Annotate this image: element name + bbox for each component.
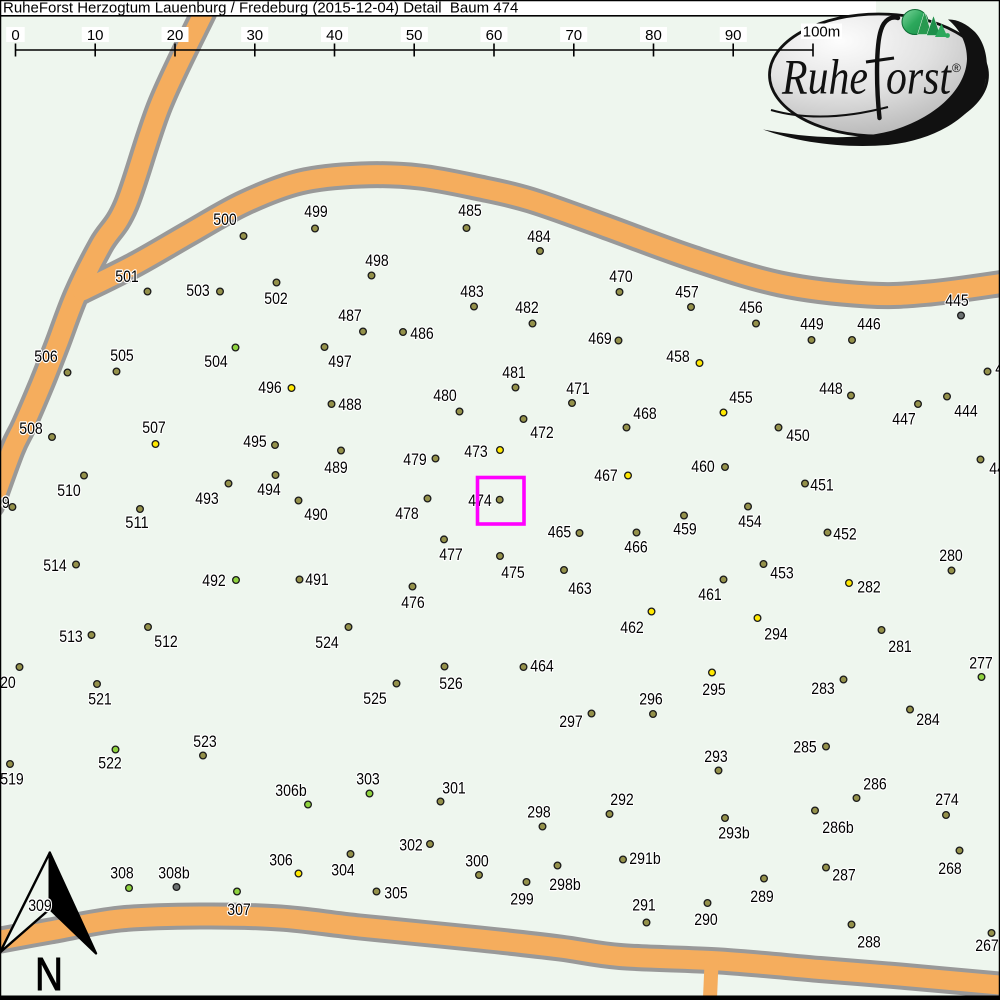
svg-text:490: 490 [304,505,328,524]
svg-text:485: 485 [458,201,482,220]
svg-text:295: 295 [702,680,726,699]
svg-text:475: 475 [501,563,525,582]
svg-text:468: 468 [633,404,657,423]
svg-text:465: 465 [548,523,572,542]
svg-text:512: 512 [154,632,178,651]
svg-text:70: 70 [565,27,582,44]
svg-text:486: 486 [410,324,434,343]
svg-text:525: 525 [363,689,387,708]
svg-text:510: 510 [57,481,81,500]
svg-text:470: 470 [609,267,633,286]
svg-text:267: 267 [975,936,999,955]
svg-text:297: 297 [559,712,583,731]
svg-text:466: 466 [624,538,648,557]
svg-text:496: 496 [258,378,282,397]
svg-text:448: 448 [819,379,843,398]
svg-text:520: 520 [0,673,16,692]
svg-text:294: 294 [764,625,788,644]
svg-text:480: 480 [433,386,457,405]
svg-text:306: 306 [269,851,293,870]
svg-text:504: 504 [204,352,228,371]
svg-text:444: 444 [954,402,978,421]
svg-text:513: 513 [59,627,83,646]
svg-text:288: 288 [857,933,881,952]
svg-text:500: 500 [213,210,237,229]
svg-text:450: 450 [786,426,810,445]
svg-text:291b: 291b [629,849,660,868]
svg-text:293b: 293b [718,824,749,843]
svg-text:304: 304 [331,861,355,880]
svg-text:303: 303 [356,770,380,789]
svg-text:479: 479 [403,450,427,469]
svg-text:293: 293 [704,747,728,766]
svg-text:298: 298 [527,803,551,822]
svg-text:282: 282 [857,578,881,597]
svg-text:302: 302 [399,836,423,855]
svg-text:460: 460 [691,457,715,476]
svg-text:296: 296 [639,690,663,709]
svg-text:503: 503 [186,281,210,300]
svg-text:30: 30 [246,27,263,44]
svg-text:497: 497 [328,352,352,371]
svg-text:493: 493 [195,489,219,508]
svg-text:442: 442 [989,459,1000,478]
svg-text:478: 478 [395,504,419,523]
svg-text:284: 284 [916,710,940,729]
svg-text:463: 463 [568,579,592,598]
svg-text:447: 447 [892,410,916,429]
svg-text:459: 459 [673,520,697,539]
svg-text:268: 268 [938,859,962,878]
svg-text:494: 494 [257,480,281,499]
svg-text:308b: 308b [158,864,189,883]
svg-text:280: 280 [939,546,963,565]
svg-text:502: 502 [264,289,288,308]
svg-text:521: 521 [88,690,112,709]
svg-text:519: 519 [0,770,24,789]
svg-text:457: 457 [675,283,699,302]
svg-text:467: 467 [594,466,618,485]
svg-text:451: 451 [810,476,834,495]
svg-text:40: 40 [326,27,343,44]
svg-text:473: 473 [464,442,488,461]
svg-text:483: 483 [460,282,484,301]
svg-text:495: 495 [243,432,267,451]
svg-text:469: 469 [588,329,612,348]
svg-text:299: 299 [510,890,534,909]
svg-text:471: 471 [566,379,590,398]
svg-text:461: 461 [698,585,722,604]
svg-text:274: 274 [935,790,959,809]
svg-text:526: 526 [439,674,463,693]
svg-text:508: 508 [19,419,43,438]
svg-text:524: 524 [315,633,339,652]
svg-text:292: 292 [610,790,634,809]
svg-text:511: 511 [125,513,149,532]
svg-text:489: 489 [324,458,348,477]
svg-text:305: 305 [384,884,408,903]
svg-text:474: 474 [468,491,492,510]
svg-text:20: 20 [167,27,184,44]
svg-text:291: 291 [632,896,656,915]
svg-text:N: N [35,948,63,1000]
svg-text:298b: 298b [549,875,580,894]
svg-text:477: 477 [439,545,463,564]
svg-text:orst: orst [886,49,952,105]
svg-text:281: 281 [888,637,912,656]
svg-text:90: 90 [725,27,742,44]
svg-text:449: 449 [800,315,824,334]
svg-text:455: 455 [729,388,753,407]
svg-text:456: 456 [739,298,763,317]
svg-text:290: 290 [694,910,718,929]
svg-text:287: 287 [832,866,856,885]
svg-text:RuheForst Herzogtum Lauenburg: RuheForst Herzogtum Lauenburg / Fredebur… [3,0,518,17]
svg-text:464: 464 [530,657,554,676]
svg-text:277: 277 [969,654,993,673]
svg-text:446: 446 [857,315,881,334]
svg-text:300: 300 [465,852,489,871]
svg-text:286b: 286b [822,818,853,837]
svg-text:509: 509 [0,493,10,512]
svg-text:309: 309 [28,896,52,915]
svg-text:498: 498 [365,251,389,270]
svg-text:50: 50 [406,27,423,44]
svg-text:481: 481 [502,363,526,382]
svg-text:462: 462 [620,618,644,637]
svg-text:506: 506 [34,347,58,366]
svg-text:®: ® [952,61,961,75]
svg-text:507: 507 [142,418,166,437]
svg-text:499: 499 [304,202,328,221]
svg-text:484: 484 [527,227,551,246]
svg-text:453: 453 [770,564,794,583]
svg-text:505: 505 [110,346,134,365]
svg-text:458: 458 [666,347,690,366]
svg-text:488: 488 [338,395,362,414]
svg-text:60: 60 [486,27,503,44]
svg-text:100m: 100m [803,24,841,41]
svg-text:487: 487 [338,306,362,325]
svg-text:289: 289 [750,887,774,906]
svg-text:308: 308 [110,864,134,883]
svg-text:491: 491 [305,570,329,589]
svg-text:283: 283 [811,679,835,698]
svg-text:501: 501 [115,267,139,286]
svg-text:0: 0 [11,27,19,44]
svg-text:286: 286 [863,775,887,794]
svg-text:Ruhe: Ruhe [781,49,868,105]
svg-text:476: 476 [401,593,425,612]
svg-text:492: 492 [202,571,226,590]
svg-text:301: 301 [442,779,466,798]
svg-text:522: 522 [98,754,122,773]
svg-text:452: 452 [833,525,857,544]
svg-text:10: 10 [87,27,104,44]
svg-text:306b: 306b [275,781,306,800]
svg-text:285: 285 [793,738,817,757]
svg-text:472: 472 [530,423,554,442]
svg-text:80: 80 [645,27,662,44]
svg-text:445: 445 [945,291,969,310]
svg-text:482: 482 [515,298,539,317]
svg-text:307: 307 [227,900,251,919]
svg-text:523: 523 [193,732,217,751]
svg-text:514: 514 [43,556,67,575]
svg-text:454: 454 [738,512,762,531]
